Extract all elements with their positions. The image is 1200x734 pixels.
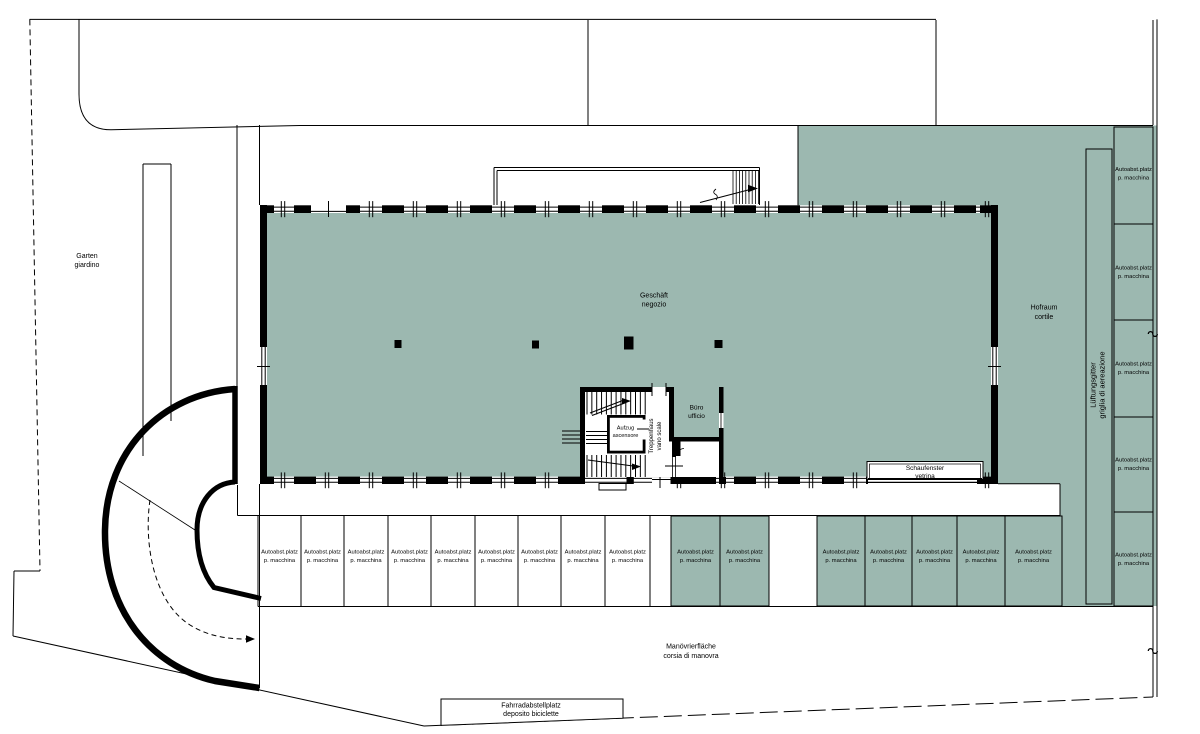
svg-text:Lüftungsgitter: Lüftungsgitter [1089,362,1098,408]
svg-text:ascensore: ascensore [613,433,639,439]
svg-text:griglia di aereazione: griglia di aereazione [1098,351,1107,418]
svg-text:Autoabst.platz: Autoabst.platz [304,550,341,556]
svg-text:p. macchina: p. macchina [1118,466,1150,472]
svg-text:Autoabst.platz: Autoabst.platz [1115,266,1152,272]
svg-text:Autoabst.platz: Autoabst.platz [963,550,1000,556]
svg-text:p. macchina: p. macchina [524,558,556,564]
svg-text:Manövrierfläche: Manövrierfläche [666,644,716,651]
svg-text:p. macchina: p. macchina [307,558,339,564]
svg-text:negozio: negozio [642,302,667,309]
svg-text:Autoabst.platz: Autoabst.platz [348,550,385,556]
svg-text:p. macchina: p. macchina [394,558,426,564]
svg-text:p. macchina: p. macchina [1018,558,1050,564]
svg-text:Autoabst.platz: Autoabst.platz [478,550,515,556]
svg-text:Autoabst.platz: Autoabst.platz [521,550,558,556]
svg-text:p. macchina: p. macchina [919,558,951,564]
svg-text:Fahrradabstellplatz: Fahrradabstellplatz [501,703,561,710]
svg-text:p. macchina: p. macchina [825,558,857,564]
svg-text:p. macchina: p. macchina [729,558,761,564]
svg-text:Autoabst.platz: Autoabst.platz [1015,550,1052,556]
svg-text:p. macchina: p. macchina [612,558,644,564]
svg-text:Autoabst.platz: Autoabst.platz [1115,458,1152,464]
svg-text:p. macchina: p. macchina [1118,561,1150,567]
svg-text:deposito biciclette: deposito biciclette [503,711,559,718]
svg-text:vano scale: vano scale [657,421,663,450]
svg-text:Autoabst.platz: Autoabst.platz [1115,362,1152,368]
svg-text:cortile: cortile [1035,314,1054,321]
svg-text:p. macchina: p. macchina [1118,370,1150,376]
svg-text:Autoabst.platz: Autoabst.platz [1115,553,1152,559]
svg-text:Autoabst.platz: Autoabst.platz [261,550,298,556]
svg-text:p. macchina: p. macchina [567,558,599,564]
svg-text:Autoabst.platz: Autoabst.platz [726,550,763,556]
svg-text:Autoabst.platz: Autoabst.platz [870,550,907,556]
svg-text:Garten: Garten [76,253,98,260]
svg-text:giardino: giardino [75,262,100,269]
svg-text:Geschäft: Geschäft [640,293,668,300]
svg-text:Autoabst.platz: Autoabst.platz [823,550,860,556]
svg-text:Autoabst.platz: Autoabst.platz [916,550,953,556]
svg-text:p. macchina: p. macchina [1118,176,1150,182]
svg-text:p. macchina: p. macchina [873,558,905,564]
svg-text:p. macchina: p. macchina [1118,274,1150,280]
svg-text:Schaufenster: Schaufenster [906,465,945,472]
svg-text:Autoabst.platz: Autoabst.platz [677,550,714,556]
svg-text:Autoabst.platz: Autoabst.platz [391,550,428,556]
svg-text:Treppenhaus: Treppenhaus [649,418,655,453]
svg-text:Autoabst.platz: Autoabst.platz [609,550,646,556]
svg-text:Aufzug: Aufzug [617,426,634,432]
svg-text:p. macchina: p. macchina [350,558,382,564]
svg-text:p. macchina: p. macchina [680,558,712,564]
svg-text:corsia di manovra: corsia di manovra [663,653,718,660]
svg-text:p. macchina: p. macchina [481,558,513,564]
svg-text:Autoabst.platz: Autoabst.platz [1115,167,1152,173]
svg-text:Hofraum: Hofraum [1031,305,1058,312]
svg-text:p. macchina: p. macchina [264,558,296,564]
svg-text:ufficio: ufficio [688,413,705,420]
svg-text:Autoabst.platz: Autoabst.platz [435,550,472,556]
svg-text:Büro: Büro [690,405,704,412]
svg-text:p. macchina: p. macchina [437,558,469,564]
svg-text:Autoabst.platz: Autoabst.platz [565,550,602,556]
svg-text:p. macchina: p. macchina [965,558,997,564]
